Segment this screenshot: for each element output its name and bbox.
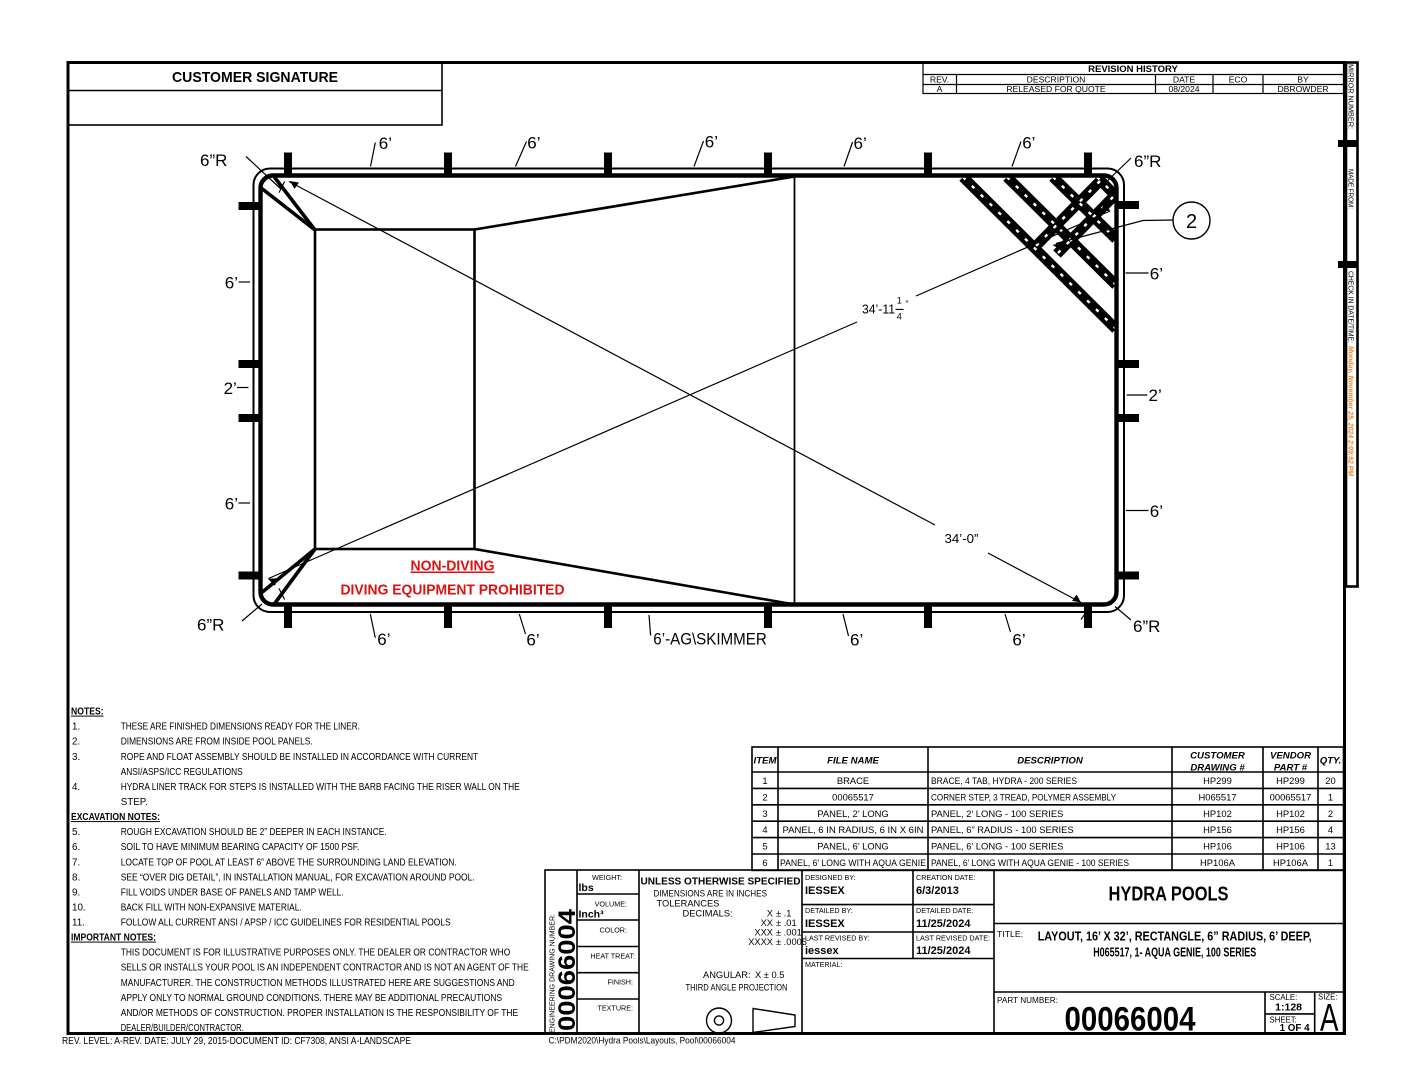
svg-text:ANGULAR:: ANGULAR: — [703, 970, 751, 980]
svg-text:HEAT TREAT:: HEAT TREAT: — [590, 952, 635, 961]
svg-text:00066004: 00066004 — [554, 908, 581, 1031]
svg-text:FILE NAME: FILE NAME — [827, 756, 879, 767]
svg-text:X ± 0.5: X ± 0.5 — [755, 970, 784, 980]
svg-text:IMPORTANT NOTES:: IMPORTANT NOTES: — [71, 933, 156, 944]
svg-text:1 OF 4: 1 OF 4 — [1280, 1023, 1310, 1034]
svg-text:6”R: 6”R — [1133, 617, 1160, 636]
svg-text:UNLESS OTHERWISE SPECIFIED: UNLESS OTHERWISE SPECIFIED — [641, 876, 801, 888]
svg-text:VENDOR: VENDOR — [1270, 751, 1311, 762]
svg-text:PANEL, 6’ LONG WITH AQUA GENIE: PANEL, 6’ LONG WITH AQUA GENIE - 100 SER… — [931, 857, 1129, 868]
svg-text:HP106A: HP106A — [1273, 857, 1309, 868]
svg-text:HP106: HP106 — [1276, 841, 1305, 852]
svg-text:XXX: XXX — [754, 928, 773, 938]
svg-text:5: 5 — [762, 841, 767, 852]
svg-text:08/2024: 08/2024 — [1168, 84, 1199, 94]
svg-text:LAYOUT, 16’ X 32’, RECTANGLE,: LAYOUT, 16’ X 32’, RECTANGLE, 6” RADIUS,… — [1038, 929, 1312, 944]
svg-text:9.: 9. — [72, 887, 80, 898]
svg-text:CHECK IN DATE/TIME:: CHECK IN DATE/TIME: — [1347, 271, 1356, 343]
svg-text:HP299: HP299 — [1203, 775, 1232, 786]
svg-text:6’: 6’ — [527, 134, 540, 153]
svg-text:HP102: HP102 — [1203, 808, 1232, 819]
svg-text:20: 20 — [1325, 775, 1335, 786]
svg-text:00065517: 00065517 — [832, 791, 874, 802]
svg-text:FOLLOW ALL CURRENT ANSI / APSP: FOLLOW ALL CURRENT ANSI / APSP / ICC GUI… — [121, 918, 451, 929]
svg-text:PANEL, 2’ LONG - 100 SERIES: PANEL, 2’ LONG - 100 SERIES — [931, 808, 1063, 819]
svg-text:± .0005: ± .0005 — [776, 937, 807, 947]
svg-text:LAST REVISED BY:: LAST REVISED BY: — [805, 934, 870, 943]
svg-text:MANUFACTURER. THE CONSTRUCTIO: MANUFACTURER. THE CONSTRUCTION METHODS I… — [121, 978, 515, 989]
svg-text:6”R: 6”R — [200, 151, 227, 170]
svg-text:6’: 6’ — [225, 495, 238, 514]
svg-text:TITLE:: TITLE: — [997, 929, 1023, 939]
svg-text:FILL VOIDS UNDER BASE OF PANEL: FILL VOIDS UNDER BASE OF PANELS AND TAMP… — [121, 887, 344, 898]
svg-text:8.: 8. — [72, 872, 80, 883]
svg-text:DETAILED BY:: DETAILED BY: — [805, 906, 853, 915]
svg-text:6’: 6’ — [854, 134, 867, 153]
svg-text:HP106: HP106 — [1203, 841, 1232, 852]
svg-text:DESCRIPTION: DESCRIPTION — [1017, 756, 1084, 767]
svg-text:34’-11: 34’-11 — [862, 302, 895, 317]
svg-text:BACK FILL WITH NON-EXPANSIVE M: BACK FILL WITH NON-EXPANSIVE MATERIAL. — [121, 903, 302, 914]
svg-text:7.: 7. — [72, 857, 80, 868]
svg-text:HYDRA LINER TRACK FOR STEPS IS: HYDRA LINER TRACK FOR STEPS IS INSTALLED… — [121, 782, 520, 793]
svg-text:HP156: HP156 — [1276, 824, 1305, 835]
svg-text:1: 1 — [1328, 857, 1333, 868]
svg-text:4.: 4. — [72, 782, 80, 793]
svg-text:lbs: lbs — [579, 882, 594, 894]
svg-text:”: ” — [906, 299, 909, 309]
svg-text:A: A — [1320, 997, 1339, 1040]
svg-text:2: 2 — [1328, 808, 1333, 819]
svg-text:TEXTURE:: TEXTURE: — [597, 1004, 633, 1013]
svg-text:6’: 6’ — [705, 133, 718, 152]
svg-text:THESE ARE FINISHED DIMENSIONS: THESE ARE FINISHED DIMENSIONS READY FOR … — [121, 722, 360, 733]
svg-text:DETAILED DATE:: DETAILED DATE: — [916, 906, 973, 915]
svg-text:ROUGH EXCAVATION SHOULD BE 2”: ROUGH EXCAVATION SHOULD BE 2” DEEPER IN … — [121, 827, 387, 838]
svg-text:NON-DIVING: NON-DIVING — [411, 558, 495, 575]
svg-text:6/3/2013: 6/3/2013 — [916, 885, 959, 897]
svg-text:EXCAVATION NOTES:: EXCAVATION NOTES: — [71, 812, 160, 823]
svg-text:11.: 11. — [72, 918, 85, 929]
svg-text:ANSI/ASPS/ICC REGULATIONS: ANSI/ASPS/ICC REGULATIONS — [121, 767, 243, 778]
svg-text:10.: 10. — [72, 903, 86, 914]
svg-text:DECIMALS:: DECIMALS: — [683, 909, 733, 919]
svg-text:SOIL TO HAVE MINIMUM BEARING C: SOIL TO HAVE MINIMUM BEARING CAPACITY OF… — [121, 842, 360, 853]
svg-text:PANEL, 6’ LONG - 100 SERIES: PANEL, 6’ LONG - 100 SERIES — [931, 841, 1063, 852]
svg-text:ECO: ECO — [1229, 75, 1248, 85]
svg-text:6’: 6’ — [225, 274, 238, 293]
svg-text:HP156: HP156 — [1203, 824, 1232, 835]
svg-text:FINISH:: FINISH: — [607, 978, 633, 987]
svg-text:2’: 2’ — [224, 379, 237, 398]
svg-text:PANEL, 6’ LONG: PANEL, 6’ LONG — [817, 841, 888, 852]
svg-text:BRACE, 4 TAB, HYDRA - 200 SERI: BRACE, 4 TAB, HYDRA - 200 SERIES — [931, 775, 1077, 786]
svg-text:LOCATE TOP OF POOL AT LEAST 6”: LOCATE TOP OF POOL AT LEAST 6” ABOVE THE… — [121, 857, 457, 868]
svg-text:2’: 2’ — [1149, 386, 1162, 405]
svg-text:3.: 3. — [72, 752, 80, 763]
svg-text:4: 4 — [1328, 824, 1333, 835]
svg-text:1.: 1. — [72, 722, 80, 733]
svg-text:CREATION DATE:: CREATION DATE: — [916, 873, 975, 882]
svg-text:X: X — [767, 909, 773, 919]
svg-text:THIS DOCUMENT IS FOR ILLUSTRAT: THIS DOCUMENT IS FOR ILLUSTRATIVE PURPOS… — [121, 948, 511, 959]
svg-text:SEE “OVER DIG DETAIL”, IN INST: SEE “OVER DIG DETAIL”, IN INSTALLATION M… — [121, 872, 475, 883]
svg-text:± .001: ± .001 — [776, 928, 802, 938]
svg-text:STEP.: STEP. — [121, 797, 148, 808]
svg-text:HP106A: HP106A — [1200, 857, 1236, 868]
svg-text:6’: 6’ — [1012, 630, 1025, 649]
svg-text:2: 2 — [1186, 211, 1197, 233]
svg-text:6: 6 — [762, 857, 767, 868]
svg-text:ITEM: ITEM — [754, 756, 778, 767]
svg-text:REVISION HISTORY: REVISION HISTORY — [1088, 64, 1178, 75]
svg-text:H065517, 1- AQUA GENIE, 100 SE: H065517, 1- AQUA GENIE, 100 SERIES — [1093, 945, 1256, 960]
svg-text:MATERIAL:: MATERIAL: — [805, 960, 842, 969]
svg-text:AND/OR METHODS OF CONSTRUCTION: AND/OR METHODS OF CONSTRUCTION. PROPER I… — [121, 1008, 519, 1019]
svg-text:34’-0”: 34’-0” — [945, 531, 979, 546]
svg-text:DIVING EQUIPMENT PROHIBITED: DIVING EQUIPMENT PROHIBITED — [341, 582, 565, 599]
svg-text:6’: 6’ — [526, 630, 539, 649]
svg-text:4: 4 — [762, 824, 767, 835]
svg-text:PANEL, 6” RADIUS - 100 SERIES: PANEL, 6” RADIUS - 100 SERIES — [931, 824, 1074, 835]
svg-text:5.: 5. — [72, 827, 80, 838]
svg-text:APPLY ONLY TO NORMAL GROUND CO: APPLY ONLY TO NORMAL GROUND CONDITIONS. … — [121, 993, 503, 1004]
svg-text:± .01: ± .01 — [776, 918, 797, 928]
svg-text:2: 2 — [762, 791, 767, 802]
svg-text:CORNER STEP, 3 TREAD, POLYMER: CORNER STEP, 3 TREAD, POLYMER ASSEMBLY — [931, 791, 1117, 802]
svg-text:VOLUME:: VOLUME: — [595, 900, 627, 909]
svg-text:CUSTOMER: CUSTOMER — [1190, 751, 1245, 762]
svg-text:00066004: 00066004 — [1065, 1001, 1196, 1039]
svg-text:WEIGHT:: WEIGHT: — [592, 873, 622, 882]
svg-text:6’: 6’ — [1022, 134, 1035, 153]
svg-text:BRACE: BRACE — [837, 775, 869, 786]
svg-text:IESSEX: IESSEX — [805, 885, 845, 897]
svg-text:RELEASED FOR QUOTE: RELEASED FOR QUOTE — [1006, 84, 1106, 94]
svg-text:DESIGNED BY:: DESIGNED BY: — [805, 873, 856, 882]
svg-text:1: 1 — [897, 296, 902, 306]
svg-text:DRAWING #: DRAWING # — [1190, 763, 1245, 774]
svg-text:1: 1 — [762, 775, 767, 786]
svg-text:PANEL, 6’ LONG WITH AQUA GENIE: PANEL, 6’ LONG WITH AQUA GENIE — [780, 857, 926, 868]
svg-text:6’-AG\SKIMMER: 6’-AG\SKIMMER — [653, 630, 767, 649]
svg-text:REV. LEVEL: A-REV. DATE: JULY: REV. LEVEL: A-REV. DATE: JULY 29, 2015-D… — [62, 1036, 411, 1047]
svg-text:HYDRA POOLS: HYDRA POOLS — [1109, 884, 1229, 906]
svg-text:XX: XX — [761, 918, 773, 928]
svg-text:IESSEX: IESSEX — [805, 918, 845, 930]
svg-text:6”R: 6”R — [197, 616, 224, 635]
svg-text:HP299: HP299 — [1276, 775, 1305, 786]
svg-text:6’: 6’ — [379, 134, 392, 153]
svg-text:THIRD ANGLE PROJECTION: THIRD ANGLE PROJECTION — [686, 983, 788, 993]
svg-text:PANEL, 2’ LONG: PANEL, 2’ LONG — [817, 808, 888, 819]
svg-text:6”R: 6”R — [1134, 152, 1161, 171]
svg-text:6’: 6’ — [377, 630, 390, 649]
svg-text:MIRROR NUMBER:: MIRROR NUMBER: — [1347, 64, 1356, 129]
svg-text:DIMENSIONS ARE FROM INSIDE POO: DIMENSIONS ARE FROM INSIDE POOL PANELS. — [121, 737, 313, 748]
svg-text:SELLS OR INSTALLS YOUR POOL IS: SELLS OR INSTALLS YOUR POOL IS AN INDEPE… — [121, 963, 529, 974]
svg-text:6’: 6’ — [850, 630, 863, 649]
svg-text:Inch³: Inch³ — [579, 909, 605, 921]
svg-text:ROPE AND FLOAT ASSEMBLY SHOULD: ROPE AND FLOAT ASSEMBLY SHOULD BE INSTAL… — [121, 752, 479, 763]
svg-text:11/25/2024: 11/25/2024 — [916, 918, 971, 930]
svg-text:C:\PDM2020\Hydra Pools\Layouts: C:\PDM2020\Hydra Pools\Layouts, Pool\000… — [549, 1035, 736, 1046]
svg-text:DIMENSIONS ARE IN INCHES: DIMENSIONS ARE IN INCHES — [654, 889, 768, 899]
svg-text:COLOR:: COLOR: — [599, 926, 627, 935]
svg-text:A: A — [937, 84, 943, 94]
svg-text:PART #: PART # — [1274, 763, 1308, 774]
svg-text:CUSTOMER SIGNATURE: CUSTOMER SIGNATURE — [172, 69, 338, 86]
svg-text:HP102: HP102 — [1276, 808, 1305, 819]
svg-text:DEALER/BUILDER/CONTRACTOR.: DEALER/BUILDER/CONTRACTOR. — [121, 1023, 244, 1034]
svg-text:± .1: ± .1 — [776, 909, 791, 919]
svg-text:6’: 6’ — [1150, 502, 1163, 521]
svg-text:PANEL, 6 IN RADIUS, 6 IN X 6IN: PANEL, 6 IN RADIUS, 6 IN X 6IN — [783, 824, 924, 835]
svg-text:1:128: 1:128 — [1275, 1002, 1302, 1014]
svg-text:NOTES:: NOTES: — [71, 707, 104, 718]
svg-text:MADE FROM:: MADE FROM: — [1347, 169, 1356, 209]
svg-text:4: 4 — [897, 312, 902, 322]
svg-text:LAST REVISED DATE:: LAST REVISED DATE: — [916, 934, 990, 943]
svg-text:Monday, November 25, 2024 2:09: Monday, November 25, 2024 2:09:52 PM — [1347, 346, 1356, 477]
svg-text:6’: 6’ — [1150, 265, 1163, 284]
svg-text:6.: 6. — [72, 842, 80, 853]
svg-text:PART NUMBER:: PART NUMBER: — [997, 996, 1058, 1005]
svg-text:00065517: 00065517 — [1270, 791, 1312, 802]
svg-text:H065517: H065517 — [1198, 791, 1236, 802]
svg-text:TOLERANCES: TOLERANCES — [657, 899, 720, 909]
svg-text:DBROWDER: DBROWDER — [1277, 84, 1328, 94]
svg-text:2.: 2. — [72, 737, 80, 748]
svg-text:13: 13 — [1325, 841, 1335, 852]
svg-text:XXXX: XXXX — [748, 937, 773, 947]
svg-text:3: 3 — [762, 808, 767, 819]
svg-text:iessex: iessex — [805, 945, 840, 957]
svg-text:QTY.: QTY. — [1320, 756, 1342, 767]
svg-text:11/25/2024: 11/25/2024 — [916, 945, 971, 957]
svg-text:1: 1 — [1328, 791, 1333, 802]
